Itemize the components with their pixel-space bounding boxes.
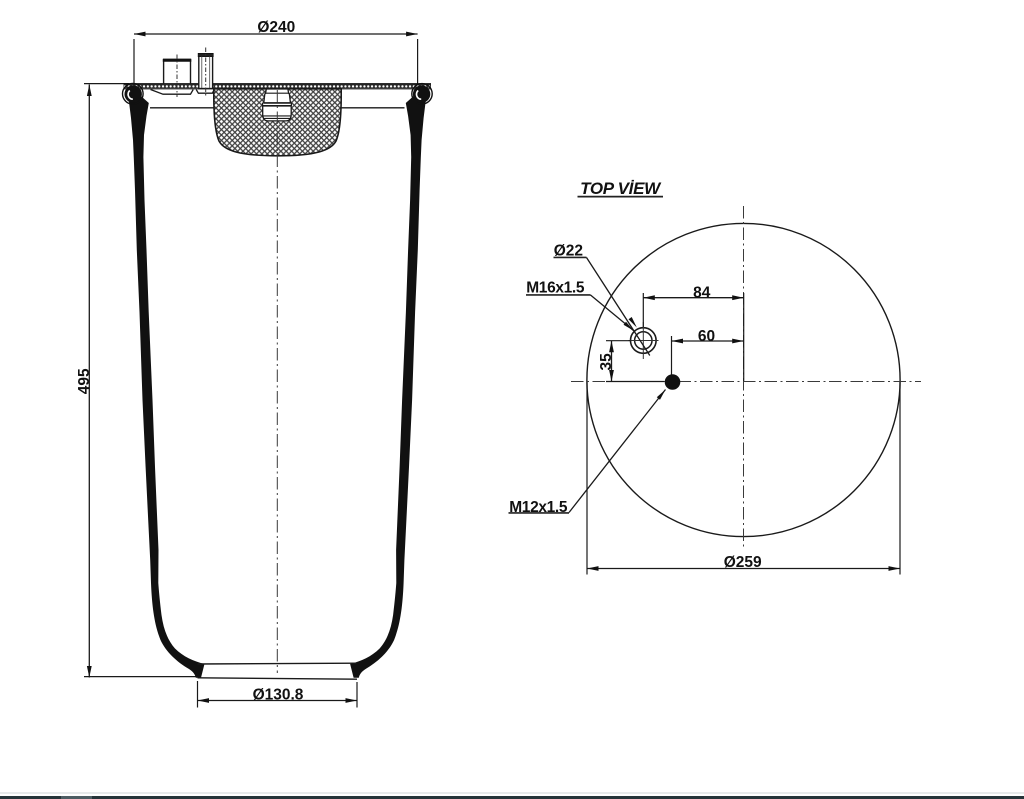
svg-text:60: 60 [698, 328, 715, 345]
svg-text:84: 84 [693, 284, 711, 301]
svg-text:Ø259: Ø259 [724, 554, 762, 571]
svg-text:M16x1.5: M16x1.5 [526, 280, 585, 297]
svg-text:35: 35 [598, 353, 615, 371]
svg-text:Ø130.8: Ø130.8 [253, 686, 304, 703]
svg-text:495: 495 [76, 368, 93, 394]
svg-text:TOP VİEW: TOP VİEW [580, 179, 662, 198]
svg-text:Ø240: Ø240 [257, 19, 295, 36]
